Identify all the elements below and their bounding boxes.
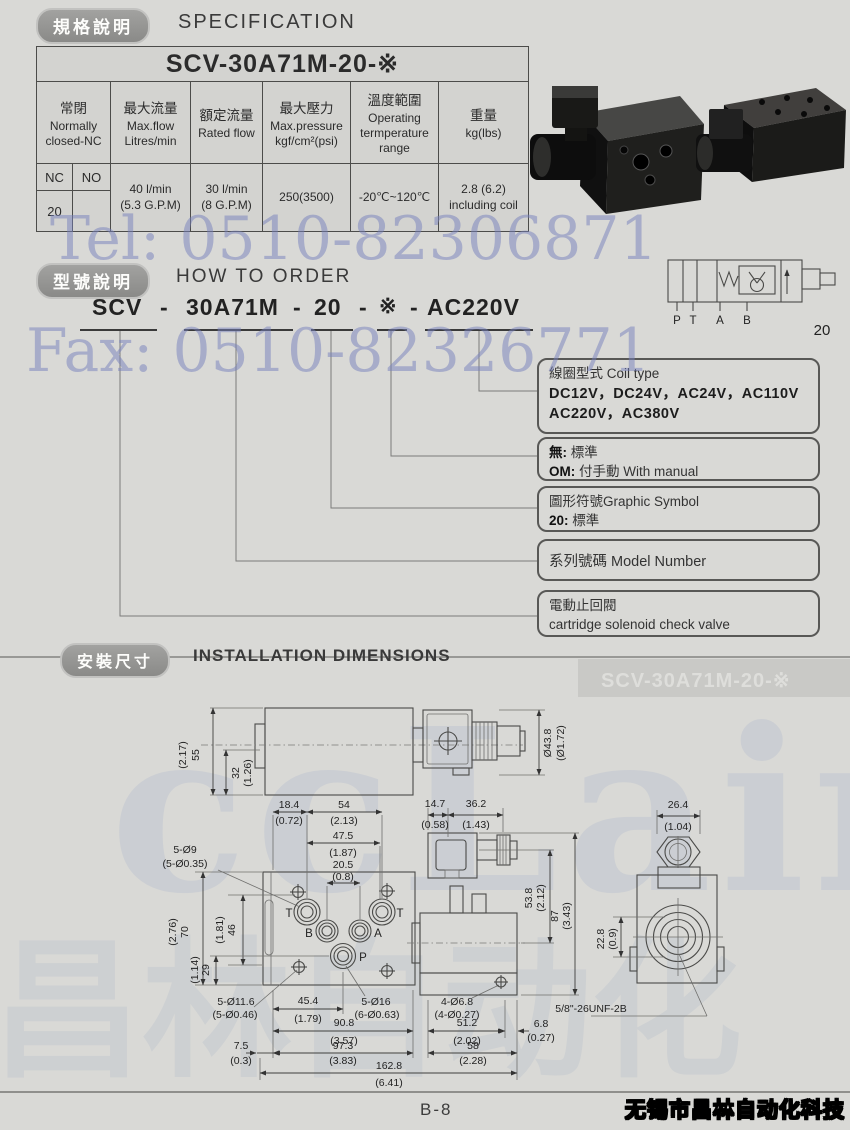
cartridge-title: 電動止回閥 (549, 597, 808, 616)
dim-label: 26.4 (668, 799, 689, 811)
spec-section-title: SPECIFICATION (178, 11, 356, 34)
coil-type-title: 線圈型式 Coil type (549, 365, 808, 384)
dim-label: (0.3) (230, 1055, 252, 1067)
product-photo-right (692, 80, 850, 195)
port-label-b: B (305, 928, 313, 940)
col-header-maxflow: 最大流量 Max.flow Litres/min (111, 82, 191, 164)
dim-label: 6.8 (534, 1018, 549, 1030)
dim-label: 87 (549, 910, 561, 922)
dim-label: (0.72) (275, 815, 302, 827)
model-part-series: SCV (92, 294, 142, 321)
dim-label: (2.17) (177, 741, 189, 768)
dim-label: (1.43) (462, 819, 489, 831)
dim-label: (1.26) (242, 759, 254, 786)
dim-label: 36.2 (466, 798, 487, 810)
dim-label: (3.83) (329, 1055, 356, 1067)
col-header-ratedflow: 額定流量 Rated flow (191, 82, 263, 164)
dim-label: Ø43.8 (542, 729, 554, 758)
dim-label: (1.87) (329, 847, 356, 859)
dim-label: (2.13) (330, 815, 357, 827)
dim-label: 5-Ø11.6 (217, 996, 254, 1008)
cell-nc-value: 20 (37, 191, 73, 232)
port-label-t1: T (285, 908, 292, 920)
callout-manual-option: 無: 標準 OM: 付手動 With manual (537, 437, 820, 481)
model-part-symbol: 20 (314, 294, 342, 321)
cell-no-value (73, 191, 111, 232)
cell-maxpressure: 250(3500) (263, 164, 351, 232)
manual-option-std: 無: 標準 (549, 444, 808, 463)
dim-label: (5-Ø0.35) (163, 858, 208, 870)
dim-label: 4-Ø6.8 (441, 996, 473, 1008)
dim-label: (0.9) (607, 928, 619, 950)
dim-label: 46 (226, 924, 238, 936)
cell-temperature: -20℃~120℃ (351, 164, 439, 232)
dim-label: (2.28) (459, 1055, 486, 1067)
dash-1: - (160, 294, 169, 321)
coil-type-row2: AC220V，AC380V (549, 404, 808, 424)
dim-label: (0.8) (332, 871, 354, 883)
footer-rule (0, 1091, 850, 1093)
port-label-a: A (374, 928, 382, 940)
spec-table-model-title: SCV-30A71M-20-※ (37, 47, 529, 82)
dim-label: 14.7 (425, 798, 446, 810)
model-part-manual: ※ (379, 294, 398, 319)
port-label-p: P (359, 952, 367, 964)
figure-end-view: 26.4 (1.04) 22.8 (0.9) 5/8"-26UNF-2B (555, 799, 724, 1016)
cell-nc: NC (37, 164, 73, 191)
order-tag-cn: 型號說明 (53, 273, 133, 292)
installation-drawing: 55 (2.17) 32 (1.26) Ø43.8 (Ø1.72) T B A … (55, 660, 820, 1090)
graphic-symbol-diagram: P T A B 20 (660, 256, 850, 338)
symbol-port-p: P (673, 315, 681, 327)
dim-label: (0.58) (421, 819, 448, 831)
dim-label: 32 (230, 767, 242, 779)
dim-label: (5-Ø0.46) (213, 1009, 258, 1021)
dim-label: (6.41) (375, 1077, 402, 1089)
manual-option-om: OM: 付手動 With manual (549, 463, 808, 482)
graphic-symbol-title: 圖形符號Graphic Symbol (549, 493, 808, 512)
col-header-maxpressure: 最大壓力 Max.pressure kgf/cm²(psi) (263, 82, 351, 164)
dim-label: 47.5 (333, 830, 354, 842)
page-number: B-8 (420, 1100, 452, 1120)
figure-solenoid-view: 14.7 (0.58) 36.2 (1.43) 53.8 (2.12) 87 (… (407, 798, 579, 995)
model-number-title: 系列號碼 Model Number (549, 552, 808, 572)
cell-weight: 2.8 (6.2) including coil (439, 164, 529, 232)
symbol-number: 20 (814, 322, 831, 338)
dim-label: (1.79) (294, 1013, 321, 1025)
dim-label: (3.43) (561, 902, 573, 929)
dim-label: (6-Ø0.63) (355, 1009, 400, 1021)
spec-table: SCV-30A71M-20-※ 常閉 Normally closed-NC 最大… (36, 46, 529, 232)
dim-label: 5-Ø16 (361, 996, 390, 1008)
catalog-page: ccLair 昌林自动化 規格說明 SPECIFICATION SCV-30A7… (0, 0, 850, 1130)
dim-label: 29 (200, 964, 212, 976)
model-part-number: 30A71M (186, 294, 279, 321)
product-photo-left (528, 78, 708, 228)
dim-label: 53.8 (523, 888, 535, 909)
figure-side-view: 55 (2.17) 32 (1.26) Ø43.8 (Ø1.72) (177, 708, 567, 795)
dim-label: 162.8 (376, 1060, 402, 1072)
dim-label: (1.04) (664, 821, 691, 833)
dim-label: (1.81) (214, 916, 226, 943)
col-header-weight: 重量 kg(lbs) (439, 82, 529, 164)
dim-label: 70 (179, 926, 191, 938)
dash-2: - (293, 294, 302, 321)
callout-model-number: 系列號碼 Model Number (537, 539, 820, 581)
dim-label: 54 (338, 799, 350, 811)
company-name: 无锡市昌林自动化科技 (625, 1094, 845, 1124)
symbol-port-t: T (689, 315, 696, 327)
dim-label: 20.5 (333, 859, 354, 871)
spec-tag-cn: 規格說明 (53, 18, 133, 37)
dim-label: (2.76) (167, 918, 179, 945)
figure-port-view: T B A T P 18.4 (0.72) 54 (2.13) (163, 799, 555, 1089)
thread-label: 5/8"-26UNF-2B (555, 1003, 626, 1015)
col-header-temperature: 溫度範圍 Operating termperature range (351, 82, 439, 164)
dim-label: 51.2 (457, 1017, 478, 1029)
cell-ratedflow: 30 l/min (8 G.P.M) (191, 164, 263, 232)
callout-graphic-symbol: 圖形符號Graphic Symbol 20: 標準 (537, 486, 820, 532)
spec-section-pill: 規格說明 (36, 8, 150, 44)
dash-4: - (410, 294, 419, 321)
cartridge-sub: cartridge solenoid check valve (549, 616, 808, 635)
coil-type-row1: DC12V，DC24V，AC24V，AC110V (549, 384, 808, 404)
dim-label: 55 (190, 749, 202, 761)
col-header-nc: 常閉 Normally closed-NC (37, 82, 111, 164)
dim-label: (Ø1.72) (555, 725, 567, 761)
dim-label: 5-Ø9 (173, 844, 197, 856)
dim-label: 7.5 (234, 1040, 249, 1052)
dim-label: 22.8 (595, 929, 607, 950)
symbol-port-a: A (716, 315, 724, 327)
dim-label: 90.8 (334, 1017, 355, 1029)
port-label-t2: T (396, 908, 403, 920)
symbol-port-b: B (743, 315, 751, 327)
dim-label: 18.4 (279, 799, 300, 811)
order-section-title: HOW TO ORDER (176, 266, 351, 288)
callout-coil-type: 線圈型式 Coil type DC12V，DC24V，AC24V，AC110V … (537, 358, 820, 434)
cell-maxflow: 40 l/min (5.3 G.P.M) (111, 164, 191, 232)
model-part-voltage: AC220V (427, 294, 520, 321)
dim-label: 58 (467, 1040, 479, 1052)
graphic-symbol-std: 20: 標準 (549, 512, 808, 531)
dim-label: 45.4 (298, 995, 319, 1007)
callout-cartridge-valve: 電動止回閥 cartridge solenoid check valve (537, 590, 820, 637)
dim-label: 97.3 (333, 1040, 354, 1052)
dim-label: (0.27) (527, 1032, 554, 1044)
cell-no: NO (73, 164, 111, 191)
dash-3: - (359, 294, 368, 321)
dim-label: (2.12) (535, 884, 547, 911)
